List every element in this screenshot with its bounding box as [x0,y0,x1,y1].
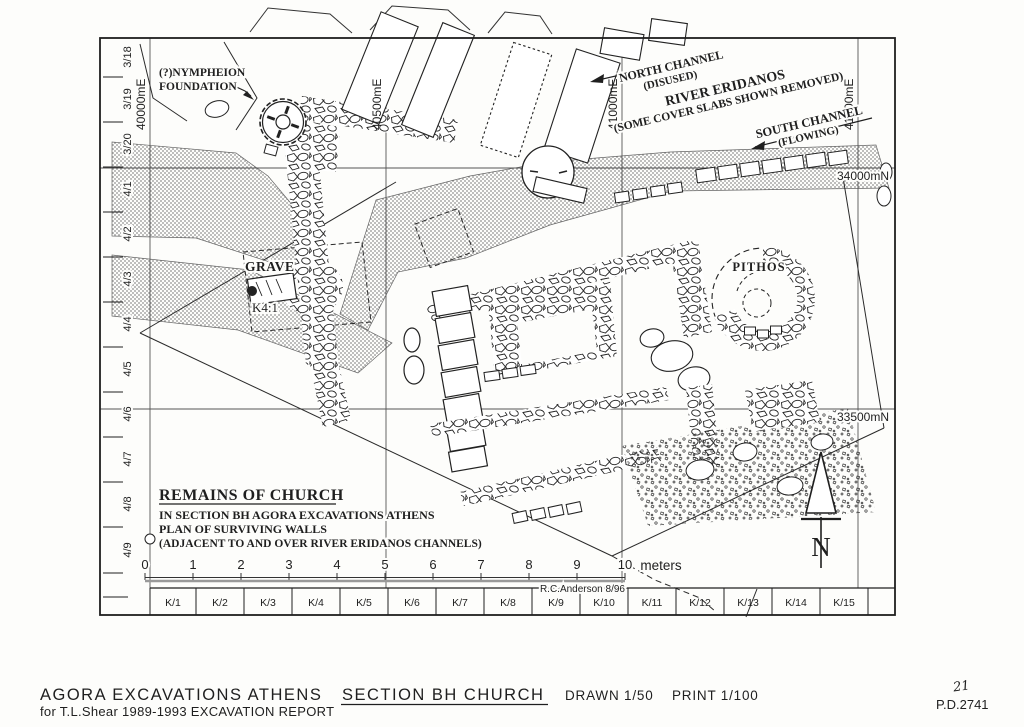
ruler-label: K/11 [642,597,663,609]
scale-tick-label: 3 [285,557,292,572]
scale-tick-label: 8 [525,557,532,572]
ruler-label: K/12 [689,597,711,609]
ruler-label: 4/7 [122,451,134,466]
ruler-label: K/2 [212,597,228,609]
ruler-label: K/5 [356,597,372,609]
scale-tick-label: 10 [618,557,632,572]
ruler-label: 4/9 [122,542,134,557]
ruler-label: K/4 [308,597,324,609]
ruler-label: 4/8 [122,496,134,511]
legend-line2: PLAN OF SURVIVING WALLS [159,522,327,536]
caption-section: SECTION BH CHURCH [342,686,544,704]
excavation-plan-drawing: N 3/18 3/19 3/20 4/1 4/2 [0,0,1024,727]
scale-tick-label: 6 [429,557,436,572]
ruler-label: K/8 [500,597,516,609]
scale-tick-label: 0 [141,557,148,572]
ruler-label: K/14 [785,597,807,609]
drawing-number: P.D.2741 [936,697,989,712]
ruler-label: K/13 [737,597,759,609]
legend-heading: REMAINS OF CHURCH [159,487,344,504]
scale-unit-label: meters [640,558,682,573]
nympheion-sublabel: FOUNDATION [159,81,237,93]
ruler-label: 3/20 [122,133,134,154]
ruler-label: 3/19 [122,88,134,109]
ruler-label: 4/2 [122,226,134,241]
scanned-plan-page: N 3/18 3/19 3/20 4/1 4/2 [0,0,1024,727]
ruler-label: 4/1 [122,181,134,196]
ruler-label: 4/6 [122,406,134,421]
scale-tick-label: 4 [333,557,340,572]
ruler-label: K/10 [593,597,615,609]
caption-print-scale: PRINT 1/100 [672,688,759,703]
ruler-label: 4/3 [122,271,134,286]
ruler-label: 4/4 [122,316,134,331]
ruler-label: K/9 [548,597,564,609]
ruler-label: K/1 [165,597,181,609]
draughtsman-credit: R.C.Anderson 8/96 [540,584,625,595]
easting-label: 40000mE [134,79,148,130]
survey-point-marker [145,534,155,544]
ruler-label: K/7 [452,597,468,609]
nympheion-label: (?)NYMPHEION [159,67,246,79]
pithos-label: PITHOS [732,260,785,274]
scale-tick-label: 9 [573,557,580,572]
scale-tick-label: 1 [189,557,196,572]
ruler-label: K/15 [833,597,855,609]
northing-label: 34000mN [837,169,889,183]
ruler-label: 4/5 [122,361,134,376]
easting-label: 40500mE [370,79,384,130]
grave-number-label: K4:1 [252,300,278,315]
legend-line1: IN SECTION BH AGORA EXCAVATIONS ATHENS [159,508,435,522]
caption-drawn-scale: DRAWN 1/50 [565,688,654,703]
grave-label: GRAVE [245,259,295,274]
caption-subtitle: for T.L.Shear 1989-1993 EXCAVATION REPOR… [40,704,334,719]
north-arrow-letter: N [811,532,831,562]
ruler-label: K/3 [260,597,276,609]
northing-label: 33500mN [837,410,889,424]
caption-main: AGORA EXCAVATIONS ATHENS [40,686,322,704]
scale-tick-label: 5 [381,557,388,572]
scale-tick-label: 2 [237,557,244,572]
legend-line3: (ADJACENT TO AND OVER RIVER ERIDANOS CHA… [159,538,482,550]
ruler-label: K/6 [404,597,420,609]
ruler-label: 3/18 [122,46,134,67]
bottom-ruler-labels: K/1 K/2 K/3 K/4 K/5 K/6 K/7 K/8 K/9 K/10… [165,597,855,609]
page-number: 21 [951,678,970,695]
scale-tick-label: 7 [477,557,484,572]
